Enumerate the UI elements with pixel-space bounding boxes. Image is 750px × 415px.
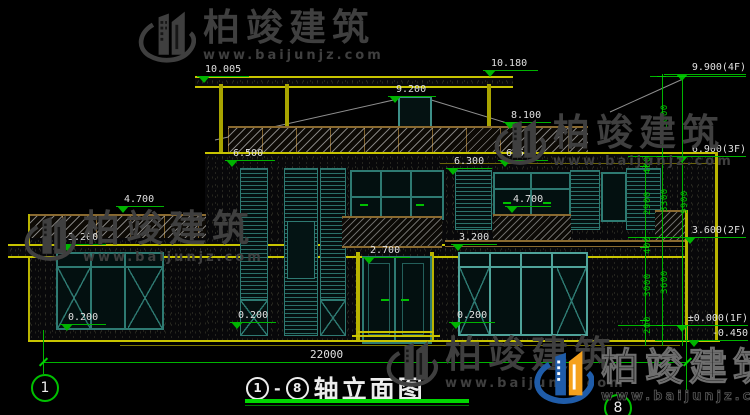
vent-mark bbox=[360, 204, 368, 206]
roof-post-left bbox=[219, 84, 223, 154]
axis-from-circle: 1 bbox=[246, 377, 269, 400]
brand-building-icon bbox=[24, 210, 76, 264]
window-1f-right bbox=[458, 252, 588, 336]
roof-post-mid bbox=[285, 84, 289, 126]
dim-3300: 3300 bbox=[660, 188, 670, 212]
cad-elevation-drawing: 10.005 10.180 9.200 8.100 6.500 6.500 6.… bbox=[0, 0, 750, 415]
brand-site: www.baijunjz.com bbox=[83, 250, 264, 265]
roof-post-right bbox=[487, 84, 491, 130]
window-2f-small bbox=[601, 172, 627, 222]
door-handle bbox=[381, 299, 389, 301]
level-2700: 2.700 bbox=[362, 243, 410, 258]
brand-text: 柏竣建筑 www.baijunjz.com bbox=[203, 9, 384, 64]
shutter-2f-a bbox=[455, 170, 492, 230]
level-0200-left: 0.200 bbox=[60, 310, 106, 325]
dim-tick bbox=[657, 76, 666, 77]
brand-logo-color: 柏竣建筑 www.baijunjz.com bbox=[534, 344, 750, 408]
dim-200: 200 bbox=[643, 316, 653, 334]
dim-9900: 9900 bbox=[680, 190, 690, 214]
level-4700-left: 4.700 bbox=[116, 192, 164, 207]
dim-tick bbox=[677, 325, 686, 326]
level-3200-right: 3.200 bbox=[451, 230, 497, 245]
level-0200-right: 0.200 bbox=[449, 308, 495, 323]
level-6300: 6.300 bbox=[446, 154, 492, 169]
level-6500-left: 6.500 bbox=[225, 146, 275, 161]
brand-building-icon bbox=[494, 114, 546, 168]
mullion bbox=[124, 254, 126, 328]
stair-louver-column-3 bbox=[320, 168, 346, 336]
level-10180: 10.180 bbox=[483, 56, 538, 71]
window-2f-center bbox=[350, 170, 444, 220]
shutter-2f-b bbox=[570, 170, 600, 230]
level-4700-right: 4.700 bbox=[505, 192, 551, 207]
brand-building-icon-color bbox=[534, 344, 594, 408]
x-pane bbox=[321, 299, 345, 335]
level-3600-2f: 3.600(2F) bbox=[672, 223, 746, 238]
glass-pane bbox=[287, 221, 315, 279]
dim-tick bbox=[677, 76, 686, 77]
axis-to-circle: 8 bbox=[286, 377, 309, 400]
dim-3600: 3600 bbox=[660, 270, 670, 294]
door-divider bbox=[394, 258, 396, 342]
level-minus-0450: -0.450 bbox=[676, 326, 748, 341]
entry-step-1 bbox=[358, 331, 434, 333]
vent-mark bbox=[416, 204, 424, 206]
brand-site: www.baijunjz.com bbox=[203, 48, 384, 63]
watermark-right: 柏竣建筑 www.baijunjz.com bbox=[494, 114, 734, 169]
level-0200-mid: 0.200 bbox=[230, 308, 276, 323]
dim-2900: 2900 bbox=[643, 191, 653, 215]
level-0000-1f: ±0.000(1F) bbox=[664, 311, 748, 326]
top-roof-slab bbox=[195, 76, 513, 88]
overall-width-dim: 22000 bbox=[310, 348, 343, 361]
transom bbox=[495, 188, 569, 190]
brand-site: www.baijunjz.com bbox=[553, 154, 734, 169]
door-handle bbox=[401, 299, 409, 301]
brand-text: 柏竣建筑 www.baijunjz.com bbox=[553, 114, 734, 169]
brand-name: 柏竣建筑 bbox=[601, 348, 750, 388]
brand-building-icon bbox=[138, 6, 196, 66]
axis-range-dash: - bbox=[274, 379, 281, 398]
axis-1-line bbox=[43, 330, 44, 374]
brand-site: www.baijunjz.com bbox=[601, 389, 750, 404]
axis-bubble-1: 1 bbox=[31, 374, 59, 402]
transom bbox=[352, 196, 442, 198]
x-pane bbox=[460, 268, 489, 334]
dim-tick bbox=[657, 325, 666, 326]
x-pane bbox=[557, 268, 586, 334]
dim-400b: 400 bbox=[643, 236, 653, 254]
watermark-left: 柏竣建筑 www.baijunjz.com bbox=[24, 210, 264, 265]
title-underline-thin bbox=[245, 405, 469, 406]
x-pane bbox=[128, 268, 162, 328]
brand-text: 柏竣建筑 www.baijunjz.com bbox=[83, 210, 264, 265]
mullion bbox=[520, 254, 522, 334]
mullion bbox=[551, 254, 553, 334]
brand-building-icon bbox=[386, 336, 438, 390]
mullion bbox=[410, 172, 412, 218]
brand-name: 柏竣建筑 bbox=[203, 9, 384, 48]
mullion bbox=[380, 172, 382, 218]
brand-name: 柏竣建筑 bbox=[553, 114, 734, 153]
watermark-top: 柏竣建筑 www.baijunjz.com bbox=[138, 6, 384, 66]
level-9200: 9.200 bbox=[388, 82, 436, 97]
title-underline bbox=[245, 399, 469, 403]
dim-tick bbox=[657, 237, 666, 238]
door-pilaster-left bbox=[356, 252, 360, 340]
level-9900-4f: 9.900(4F) bbox=[664, 60, 746, 75]
brand-name: 柏竣建筑 bbox=[83, 210, 264, 249]
stair-louver-column-2 bbox=[284, 168, 318, 336]
dim-3000b: 3000 bbox=[643, 273, 653, 297]
brand-text: 柏竣建筑 www.baijunjz.com bbox=[601, 348, 750, 404]
